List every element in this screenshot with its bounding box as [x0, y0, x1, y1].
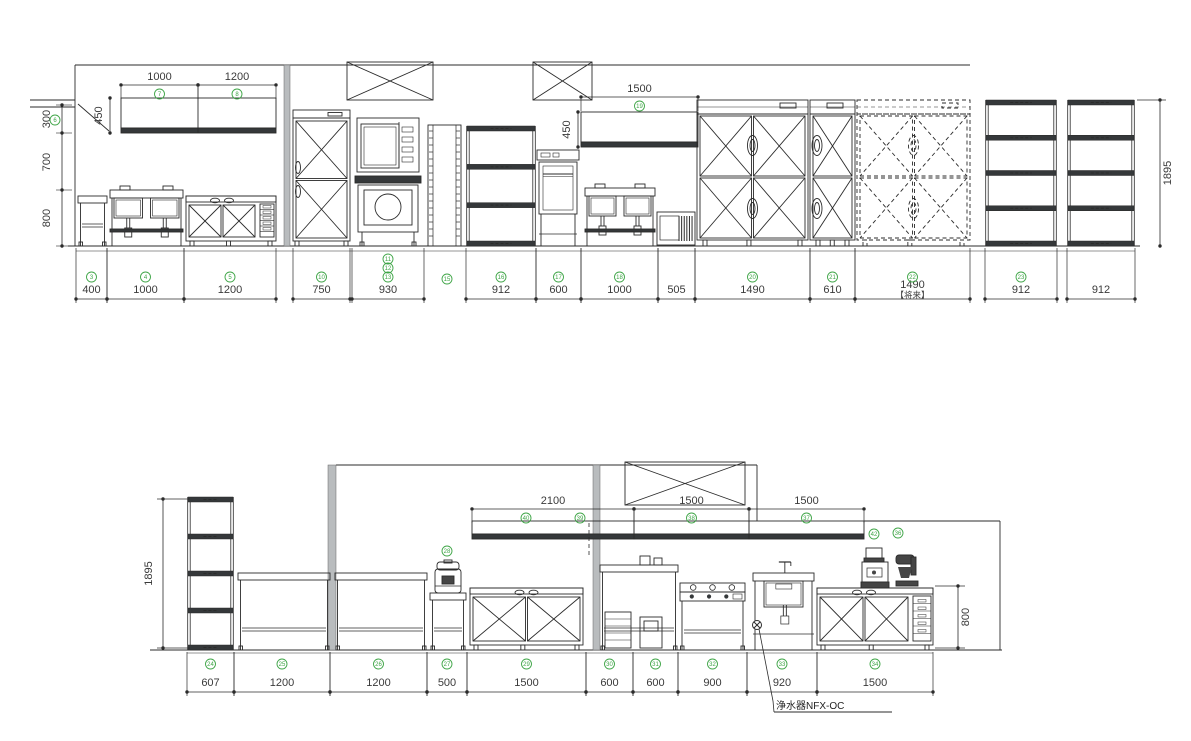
dimension-vertical: 450 [93, 96, 112, 134]
dim-label: 400 [82, 284, 100, 296]
item-number: 33 [779, 662, 786, 668]
dimension-bottom: 150029 [465, 652, 587, 696]
dim-label: 1490 [740, 284, 764, 296]
item-number: 12 [385, 266, 392, 272]
item-number: 15 [444, 277, 451, 283]
dimension-bottom: 120026 [328, 652, 428, 696]
item-number-circle: 37 [802, 513, 812, 523]
unit-column [284, 65, 290, 246]
unit-hatch [30, 100, 75, 107]
item-number-circle: 24 [206, 659, 216, 669]
dim-label: 505 [667, 284, 685, 296]
note-text: 浄水器NFX-OC [776, 699, 844, 712]
unit-mixer [896, 555, 918, 586]
unit-rack [1068, 100, 1135, 246]
dimension-bottom: 75010 [291, 248, 351, 303]
dimension-top: 150038 [632, 495, 750, 523]
item-number: 25 [279, 662, 286, 668]
item-number-circle: 7 [155, 89, 165, 99]
item-number-circle: 13 [383, 272, 393, 282]
unit-table [600, 556, 678, 650]
item-number-circle: 25 [277, 659, 287, 669]
unit-fridgetall [293, 110, 350, 246]
item-number: 28 [444, 549, 451, 555]
unit-table [335, 573, 427, 650]
unit-fridge4 [857, 100, 970, 246]
item-number: 38 [688, 516, 695, 522]
item-number: 5 [228, 275, 232, 281]
item-number-circle: 31 [651, 659, 661, 669]
dimension-bottom: 150034 [815, 652, 934, 696]
item-number: 11 [385, 257, 392, 263]
unit-rack [467, 126, 536, 246]
item-number: 7 [158, 92, 162, 98]
unit-sink2 [585, 184, 655, 246]
dim-label: 900 [703, 677, 721, 689]
item-number-circle: 5 [225, 272, 235, 282]
dim-label: 1500 [863, 677, 887, 689]
item-number: 32 [709, 662, 716, 668]
dim-label: 1000 [147, 71, 171, 83]
item-number: 16 [498, 275, 505, 281]
dim-label: 1200 [366, 677, 390, 689]
dimension-vertical: 800 [935, 584, 972, 649]
item-number-circle: 15 [442, 274, 452, 284]
dimension-bottom: 120025 [232, 652, 331, 696]
item-number-circle: 21 [828, 272, 838, 282]
dimension-bottom: 60017 [534, 248, 582, 303]
unit-range [680, 583, 745, 650]
item-number-circle: 40 [521, 513, 531, 523]
unit-table [78, 196, 107, 246]
item-number: 22 [909, 275, 916, 281]
item-number-circle: 4 [141, 272, 151, 282]
dim-label: 607 [201, 677, 219, 689]
item-number-circle: 10 [317, 272, 327, 282]
dim-label: 930 [379, 284, 397, 296]
unit-icemaker [657, 212, 695, 245]
dimension-bottom: 90032 [676, 652, 748, 696]
item-number: 37 [803, 516, 810, 522]
item-number: 10 [318, 275, 325, 281]
item-number-circle: 23 [1016, 272, 1026, 282]
item-number-circle: 29 [522, 659, 532, 669]
item-number-circle: 22 [908, 272, 918, 282]
item-number: 18 [616, 275, 623, 281]
item-number: 20 [749, 275, 756, 281]
item-number-circle: 34 [870, 659, 880, 669]
dim-label: 600 [549, 284, 567, 296]
dimension-bottom: 91216 [464, 248, 537, 303]
item-number: 34 [872, 662, 879, 668]
dim-label: 1895 [1162, 161, 1174, 185]
item-number-circle: 19 [635, 101, 645, 111]
dim-label: 1000 [133, 284, 157, 296]
item-number: 21 [829, 275, 836, 281]
item-number-circle: 28 [442, 546, 452, 556]
dim-label: 300 [41, 110, 53, 128]
dim-label: 750 [312, 284, 330, 296]
unit-fridge4 [697, 100, 808, 246]
bottom-elevation: 6072412002512002650027150029600306003190… [143, 462, 1002, 712]
dimension-bottom: 92033 [745, 652, 818, 696]
item-number: 36 [895, 531, 902, 537]
dim-label: 912 [1092, 284, 1110, 296]
item-number: 6 [53, 118, 57, 124]
unit-wallshelf [749, 521, 864, 539]
unit-wallshelf [634, 521, 749, 539]
dim-label: 600 [600, 677, 618, 689]
unit-hood [533, 62, 592, 100]
dim-label: 1500 [514, 677, 538, 689]
item-number: 39 [577, 516, 584, 522]
item-number: 4 [144, 275, 148, 281]
item-number-circle: 42 [869, 529, 879, 539]
dim-label: 1500 [794, 495, 818, 507]
dim-label: 610 [823, 284, 841, 296]
unit-rack [188, 497, 234, 650]
item-number-circle: 16 [496, 272, 506, 282]
dim-label: 800 [41, 209, 53, 227]
unit-fridgecounter [186, 196, 276, 246]
item-number: 19 [636, 104, 643, 110]
drawing-page: 4003100041200575010930111213912166001710… [0, 0, 1191, 741]
dimension-bottom: 60724 [185, 652, 235, 696]
dimension-bottom: 912 [1065, 248, 1136, 303]
dim-label: 1200 [218, 284, 242, 296]
unit-wallshelf [121, 98, 276, 133]
item-number-circle: 20 [748, 272, 758, 282]
dimension-bottom: 100018 [579, 248, 659, 303]
dim-label: 700 [41, 153, 53, 171]
dimension-bottom: 4003 [74, 248, 108, 303]
dim-label: 450 [561, 120, 573, 138]
dimension-top: 21004039 [470, 495, 635, 523]
top-elevation: 4003100041200575010930111213912166001710… [30, 62, 1174, 303]
dimension-bottom: 50027 [425, 652, 468, 696]
dim-label: 1500 [627, 83, 651, 95]
item-number: 26 [375, 662, 382, 668]
item-number-circle: 32 [708, 659, 718, 669]
kitchen-elevation-drawing: 4003100041200575010930111213912166001710… [0, 0, 1191, 741]
item-number-circle: 26 [374, 659, 384, 669]
dim-label: 800 [960, 608, 972, 626]
item-number: 3 [90, 275, 94, 281]
unit-platerack [428, 125, 461, 246]
unit-wallshelf [472, 521, 634, 539]
dim-label: 1500 [679, 495, 703, 507]
dimension-top: 10007 [119, 71, 199, 99]
dim-label: 1895 [143, 561, 155, 585]
unit-fridgecounter [470, 588, 583, 650]
dimension-bottom: 1490【将来】22 [853, 248, 971, 303]
dimension-bottom: 12005 [182, 248, 277, 303]
item-number-circle: 30 [605, 659, 615, 669]
unit-wallshelf [581, 112, 698, 147]
item-number-circle: 27 [442, 659, 452, 669]
unit-foodprocessor [861, 548, 889, 588]
dimension-bottom: 149020 [693, 248, 811, 303]
dimension-bottom: 60031 [631, 652, 679, 696]
dimension-vertical: 1895 [1137, 98, 1174, 247]
item-number: 31 [652, 662, 659, 668]
dimension-bottom: 91223 [983, 248, 1058, 303]
item-number: 29 [523, 662, 530, 668]
item-number-circle: 12 [383, 263, 393, 273]
dim-label: 920 [773, 677, 791, 689]
item-number: 23 [1018, 275, 1025, 281]
unit-column [593, 465, 600, 650]
item-number-circle: 17 [554, 272, 564, 282]
dimension-top: 12008 [196, 71, 277, 99]
unit-oven [355, 118, 421, 246]
item-number-circle: 11 [383, 254, 393, 264]
unit-rack [986, 100, 1057, 246]
item-number: 8 [235, 92, 239, 98]
unit-table [430, 593, 466, 650]
item-number: 40 [523, 516, 530, 522]
unit-sinkbig [753, 562, 814, 650]
dim-label: 1000 [607, 284, 631, 296]
item-number-circle: 3 [87, 272, 97, 282]
dim-label: 912 [1012, 284, 1030, 296]
future-unit [857, 100, 970, 246]
unit-table [238, 573, 330, 650]
item-number-circle: 33 [777, 659, 787, 669]
dim-label: 2100 [541, 495, 565, 507]
unit-sink2 [110, 186, 183, 246]
item-number-circle: 18 [615, 272, 625, 282]
item-number: 13 [385, 275, 392, 281]
item-number-circle: 36 [893, 528, 903, 538]
under-counter-units [605, 556, 662, 648]
unit-fridgecounter [817, 588, 933, 650]
item-number: 17 [555, 275, 562, 281]
unit-hood [347, 62, 433, 100]
dimension-bottom: 60030 [584, 652, 634, 696]
dim-label: 450 [93, 106, 105, 124]
dimension-bottom: 61021 [808, 248, 856, 303]
dimension-bottom: 10004 [105, 248, 185, 303]
dim-label: 1200 [225, 71, 249, 83]
item-number-circle: 38 [687, 513, 697, 523]
dim-label: 600 [646, 677, 664, 689]
item-number-circle: 39 [575, 513, 585, 523]
dimension-bottom: 930111213 [350, 248, 425, 303]
dimension-vertical: 1895 [143, 497, 190, 649]
dimension-vertical: 450 [561, 110, 580, 148]
dim-label: 500 [438, 677, 456, 689]
dimension-bottom: 505 [656, 248, 696, 303]
unit-column [328, 465, 336, 650]
unit-ricecooker [435, 560, 461, 593]
dim-label: 【将来】 [895, 290, 929, 300]
item-number: 27 [444, 662, 451, 668]
dim-label: 912 [492, 284, 510, 296]
dimension-top: 150019 [579, 83, 699, 111]
item-number-circle: 8 [232, 89, 242, 99]
dimension-top: 150037 [747, 495, 865, 523]
unit-fridge4 [810, 100, 855, 246]
item-number: 42 [871, 532, 878, 538]
unit-dishwasher [537, 150, 579, 246]
item-number: 30 [606, 662, 613, 668]
item-number: 24 [207, 662, 214, 668]
dim-label: 1200 [270, 677, 294, 689]
